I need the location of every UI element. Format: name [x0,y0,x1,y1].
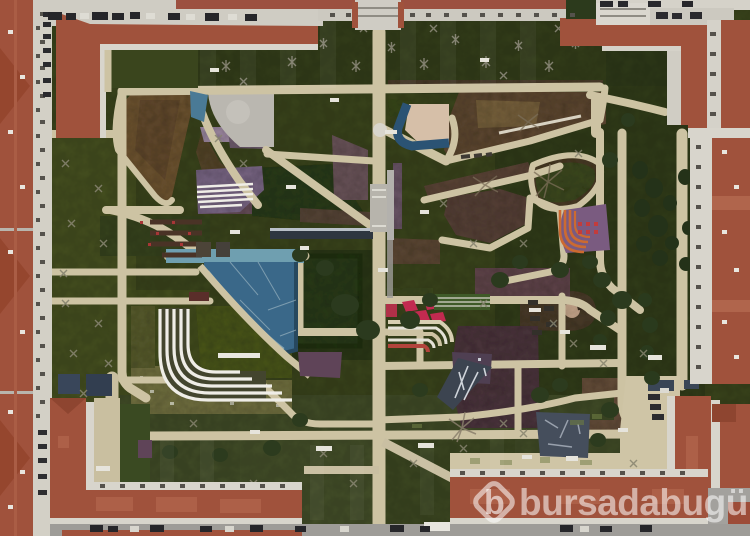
svg-text:b: b [484,484,505,522]
svg-text:bursadabugün: bursadabugün [519,482,750,523]
